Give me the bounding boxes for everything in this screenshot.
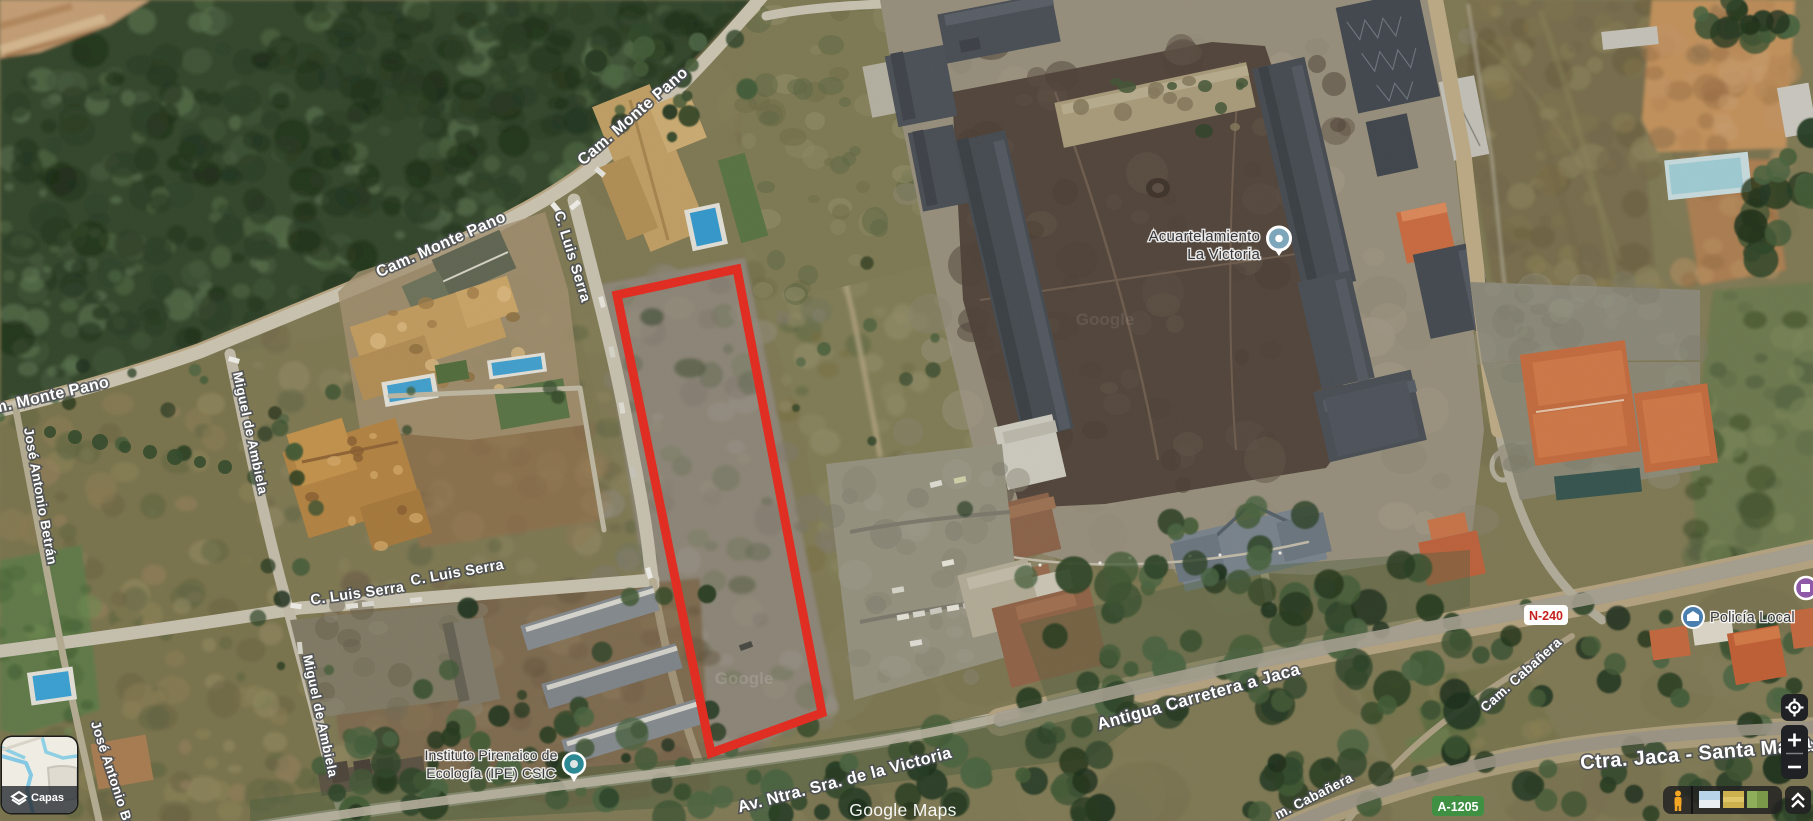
svg-text:Google: Google bbox=[715, 669, 774, 688]
svg-text:Google Maps: Google Maps bbox=[849, 800, 956, 820]
svg-text:N-240: N-240 bbox=[1529, 609, 1563, 623]
svg-text:La Victoria: La Victoria bbox=[1187, 246, 1260, 263]
svg-text:Ecología (IPE) CSIC: Ecología (IPE) CSIC bbox=[426, 765, 556, 781]
svg-text:Capas: Capas bbox=[31, 792, 64, 804]
svg-text:A-1205: A-1205 bbox=[1438, 800, 1479, 814]
svg-text:Policía Local: Policía Local bbox=[1710, 610, 1795, 626]
svg-text:Acuartelamiento: Acuartelamiento bbox=[1149, 228, 1260, 245]
svg-text:Instituto Pirenaico de: Instituto Pirenaico de bbox=[425, 747, 558, 763]
svg-text:Google: Google bbox=[1076, 310, 1135, 329]
